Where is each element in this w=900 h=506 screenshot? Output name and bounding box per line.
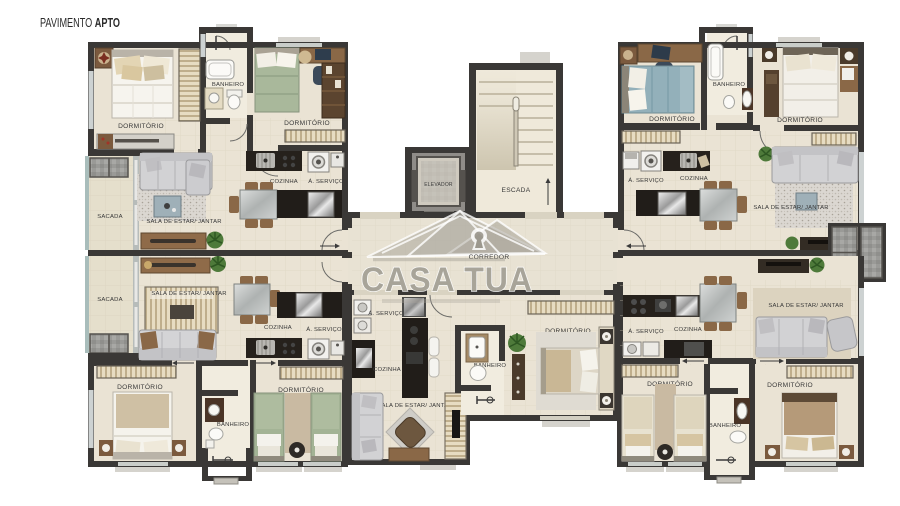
svg-text:COZINHA: COZINHA bbox=[264, 325, 292, 331]
svg-text:SACADA: SACADA bbox=[97, 297, 122, 303]
svg-text:COZINHA: COZINHA bbox=[373, 367, 401, 373]
svg-text:COZINHA: COZINHA bbox=[270, 179, 298, 185]
svg-text:Á. SERVIÇO: Á. SERVIÇO bbox=[628, 328, 664, 335]
svg-text:BANHEIRO: BANHEIRO bbox=[709, 423, 742, 429]
svg-text:SALA DE ESTAR/ JANTAR: SALA DE ESTAR/ JANTAR bbox=[768, 303, 843, 309]
svg-text:SACADA: SACADA bbox=[97, 214, 122, 220]
svg-text:DORMITÓRIO: DORMITÓRIO bbox=[777, 115, 823, 124]
svg-text:BANHEIRO: BANHEIRO bbox=[713, 82, 746, 88]
svg-text:ELEVADOR: ELEVADOR bbox=[424, 182, 453, 188]
svg-text:Á. SERVIÇO: Á. SERVIÇO bbox=[308, 178, 344, 185]
svg-text:COZINHA: COZINHA bbox=[674, 327, 702, 333]
svg-text:SALA DE ESTAR/ JANTAR: SALA DE ESTAR/ JANTAR bbox=[753, 205, 828, 211]
svg-text:BANHEIRO: BANHEIRO bbox=[212, 82, 245, 88]
svg-text:DORMITÓRIO: DORMITÓRIO bbox=[649, 114, 695, 123]
svg-text:SALA DE ESTAR/ JANTAR: SALA DE ESTAR/ JANTAR bbox=[377, 403, 452, 409]
svg-text:DORMITÓRIO: DORMITÓRIO bbox=[284, 118, 330, 127]
svg-text:PAVIMENTO APTO: PAVIMENTO APTO bbox=[40, 15, 120, 30]
svg-text:Á. SERVIÇO: Á. SERVIÇO bbox=[368, 310, 404, 317]
svg-text:DORMITÓRIO: DORMITÓRIO bbox=[118, 121, 164, 130]
svg-text:Á. SERVIÇO: Á. SERVIÇO bbox=[628, 177, 664, 184]
svg-text:SALA DE ESTAR/ JANTAR: SALA DE ESTAR/ JANTAR bbox=[146, 219, 221, 225]
svg-text:DORMITÓRIO: DORMITÓRIO bbox=[767, 380, 813, 389]
svg-text:COZINHA: COZINHA bbox=[680, 176, 708, 182]
svg-text:Á. SERVIÇO: Á. SERVIÇO bbox=[306, 326, 342, 333]
svg-text:ESCADA: ESCADA bbox=[502, 187, 531, 194]
svg-text:CASA TUA: CASA TUA bbox=[361, 261, 533, 299]
svg-text:SALA DE ESTAR/ JANTAR: SALA DE ESTAR/ JANTAR bbox=[151, 291, 226, 297]
svg-text:DORMITÓRIO: DORMITÓRIO bbox=[117, 382, 163, 391]
svg-text:BANHEIRO: BANHEIRO bbox=[217, 422, 250, 428]
